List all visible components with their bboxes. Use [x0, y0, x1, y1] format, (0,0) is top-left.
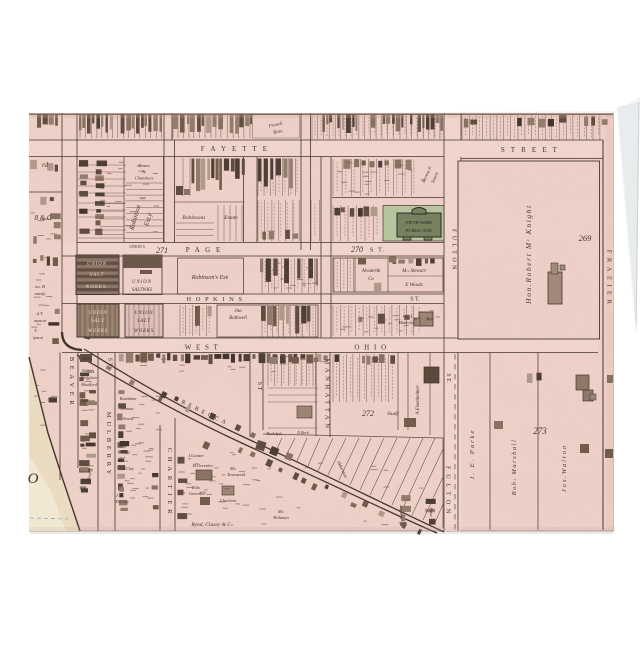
- svg-text:21: 21: [119, 456, 126, 464]
- svg-text:O: O: [28, 471, 39, 487]
- svg-text:BEAVER: BEAVER: [68, 357, 75, 409]
- svg-text:S T.: S T.: [410, 297, 420, 303]
- svg-text:McClay: McClay: [114, 499, 129, 504]
- svg-text:Boardman: Boardman: [120, 396, 137, 401]
- svg-text:S T.: S T.: [370, 247, 386, 254]
- svg-text:Atkinson: Atkinson: [80, 398, 95, 403]
- svg-text:FULTON: FULTON: [445, 466, 452, 518]
- svg-text:mpson: mpson: [34, 318, 47, 323]
- svg-text:Townsend: Townsend: [227, 472, 246, 477]
- svg-text:Co: Co: [368, 277, 374, 282]
- svg-text:FRAZIER: FRAZIER: [606, 250, 613, 309]
- svg-text:ipson: ipson: [33, 335, 44, 340]
- svg-text:Lehman: Lehman: [120, 406, 134, 411]
- svg-text:O H I O: O H I O: [354, 344, 387, 352]
- svg-text:T.: T.: [34, 328, 37, 333]
- svg-text:Charlton: Charlton: [220, 498, 237, 503]
- svg-text:E Woods: E Woods: [404, 283, 423, 288]
- svg-text:Wm J.: Wm J.: [403, 314, 413, 319]
- svg-text:S T: S T: [107, 358, 113, 367]
- svg-text:Medeira: Medeira: [397, 320, 414, 325]
- svg-text:Blackford: Blackford: [81, 382, 98, 387]
- svg-text:nnedy: nnedy: [35, 291, 46, 296]
- svg-text:Mrs: Mrs: [277, 509, 285, 514]
- svg-text:Rynd, Clasey & Co: Rynd, Clasey & Co: [190, 522, 233, 528]
- svg-text:Alvater&: Alvater&: [361, 269, 381, 274]
- svg-text:MANHATTAN: MANHATTAN: [324, 358, 331, 431]
- svg-text:Robinson's Estl: Robinson's Estl: [191, 275, 229, 281]
- svg-text:CHARTIER: CHARTIER: [166, 448, 173, 519]
- svg-text:8 & C: 8 & C: [34, 214, 51, 222]
- svg-text:Nichols: Nichols: [81, 368, 95, 373]
- svg-text:Bothwell: Bothwell: [229, 316, 247, 321]
- svg-text:Chambers: Chambers: [135, 176, 154, 181]
- svg-text:Greenlee: Greenlee: [189, 491, 205, 496]
- svg-text:FULTON: FULTON: [451, 229, 457, 273]
- svg-text:Mrs Stewart: Mrs Stewart: [401, 269, 426, 274]
- svg-text:ming: ming: [428, 507, 433, 517]
- svg-text:Hohman: Hohman: [272, 515, 289, 520]
- svg-text:W E S T: W E S T: [185, 344, 220, 352]
- svg-text:aughter: aughter: [398, 505, 403, 519]
- svg-text:d.T.: d.T.: [37, 311, 44, 316]
- svg-text:MULBERRY: MULBERRY: [105, 412, 112, 478]
- svg-text:Robt: Robt: [191, 485, 200, 490]
- svg-text:271: 271: [156, 246, 168, 255]
- svg-text:H O P K I N S: H O P K I N S: [186, 296, 243, 303]
- svg-text:Estate: Estate: [223, 215, 238, 221]
- svg-text:W.Clay: W.Clay: [122, 466, 134, 471]
- svg-text:Jna: Jna: [234, 309, 242, 314]
- svg-text:Res.: Res.: [425, 316, 434, 321]
- svg-text:H.Greenlee: H.Greenlee: [192, 463, 214, 468]
- svg-text:rd: rd: [42, 161, 48, 169]
- svg-text:J. H.: J. H.: [116, 493, 125, 498]
- svg-text:270: 270: [351, 245, 363, 254]
- svg-text:J.Gunter: J.Gunter: [188, 453, 204, 458]
- svg-text:Robinsons: Robinsons: [182, 215, 206, 221]
- svg-text:Nicholson: Nicholson: [80, 375, 97, 380]
- svg-text:UNION S: UNION S: [129, 244, 144, 249]
- svg-text:Arnold: Arnold: [121, 416, 134, 421]
- svg-text:F A Y E T T E: F A Y E T T E: [201, 145, 269, 153]
- svg-text:P A G E: P A G E: [186, 246, 223, 254]
- svg-text:Mrs: Mrs: [229, 466, 237, 471]
- svg-text:S T R E E T: S T R E E T: [501, 146, 559, 154]
- svg-text:Hanes: Hanes: [137, 163, 150, 168]
- svg-text:S T.: S T.: [445, 373, 451, 383]
- svg-text:no. B: no. B: [35, 284, 45, 289]
- svg-text:S T: S T: [256, 382, 262, 391]
- svg-text:&: &: [142, 169, 146, 174]
- svg-text:Miller: Miller: [81, 356, 92, 361]
